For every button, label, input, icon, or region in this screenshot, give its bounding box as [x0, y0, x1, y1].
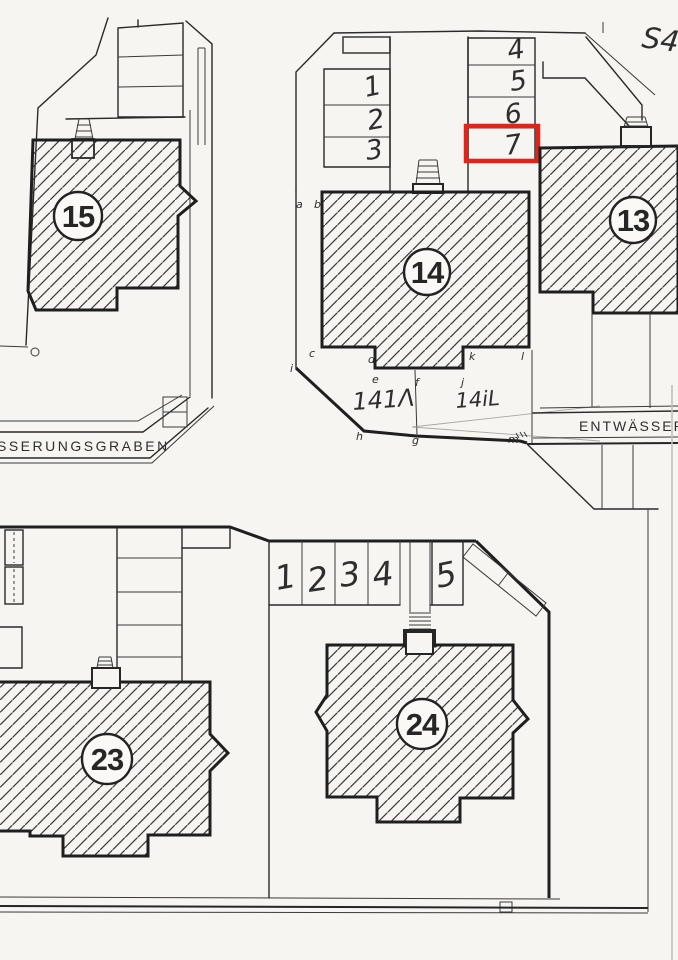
pt-a: a [296, 198, 303, 211]
pt-i: i [290, 362, 293, 375]
margin-note: S4 [640, 20, 678, 59]
pt-d: d [368, 353, 376, 366]
chimney-23-base [92, 668, 120, 688]
plan-drawing: 15 SSERUNGSGRABEN 1 2 3 4 5 [0, 0, 678, 960]
site-plan-scan: 15 SSERUNGSGRABEN 1 2 3 4 5 [0, 0, 678, 960]
pt-c: c [309, 347, 315, 360]
road-label-left: SSERUNGSGRABEN [0, 438, 170, 454]
building-14-number: 14 [411, 255, 445, 290]
parcel-label-right: 14iL [455, 386, 501, 413]
road-label-right: ENTWÄSSERU [579, 418, 678, 434]
pt-e: e [372, 373, 379, 386]
chimney-13-base [621, 127, 651, 146]
pt-g: g [412, 434, 419, 447]
chimney-24-base [406, 632, 433, 654]
building-15-number: 15 [62, 199, 95, 234]
building-23-number: 23 [91, 742, 124, 777]
pt-l: l [521, 350, 524, 363]
building-15-outline [28, 140, 196, 310]
building-13-outline [540, 146, 678, 313]
building-24-number: 24 [406, 707, 440, 742]
parcel-label-left: 141Λ [351, 384, 415, 416]
pt-h: h [356, 430, 363, 443]
pt-b: b [314, 198, 321, 211]
pt-k: k [469, 350, 476, 363]
building-13-number: 13 [617, 203, 650, 238]
